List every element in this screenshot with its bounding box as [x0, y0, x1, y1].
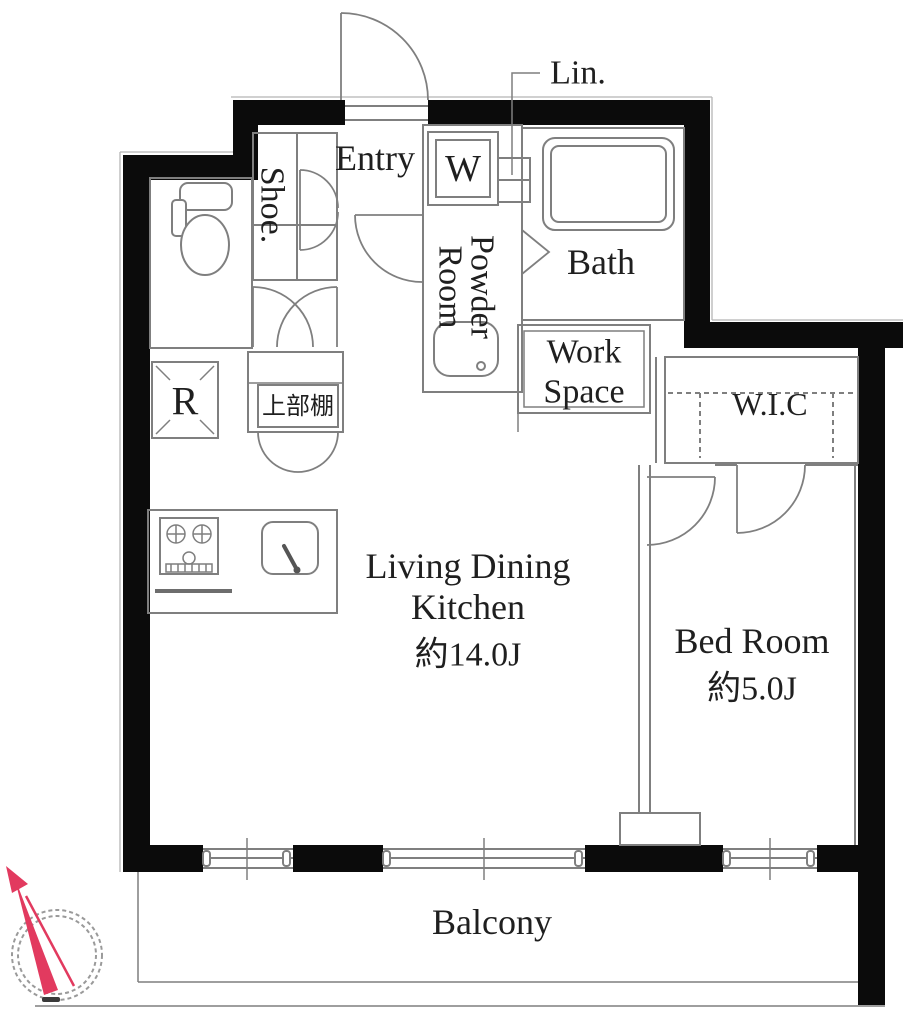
wic-door [737, 465, 805, 533]
bath-room: Bath [522, 128, 684, 320]
washer-label: W [445, 148, 481, 190]
ldk-label-2: Kitchen [411, 587, 525, 627]
washer-pan: W [428, 132, 498, 205]
window-ldk-left [203, 838, 293, 880]
linen-label: Lin. [550, 55, 606, 92]
bedroom-size: 約5.0J [707, 670, 797, 708]
work-space: Work Space [518, 325, 650, 432]
sink [262, 522, 318, 574]
balcony: Balcony [35, 872, 885, 1006]
powder-room-label-2: Room [432, 245, 469, 328]
floor-plan: Shoe. W Lin. Powder Room [0, 0, 903, 1024]
work-space-label-1: Work [547, 334, 622, 371]
window-bedroom [723, 838, 817, 880]
compass-needle [14, 876, 58, 995]
bath-label: Bath [567, 242, 635, 282]
bath-door [522, 230, 549, 274]
toilet-fixture [172, 183, 232, 275]
refrigerator-space: R [152, 362, 218, 438]
work-space-label-2: Space [543, 374, 624, 411]
upper-shelf-label: 上部棚 [262, 393, 334, 420]
ldk-size: 約14.0J [415, 636, 522, 674]
refrigerator-label: R [172, 379, 199, 424]
wic: W.I.C [656, 357, 858, 533]
bedroom-label: Bed Room [674, 621, 829, 661]
floor-plan-canvas: Shoe. W Lin. Powder Room [0, 0, 903, 1024]
wic-label: W.I.C [732, 386, 807, 422]
shoe-closet-doors [300, 170, 338, 250]
ldk-label-1: Living Dining [366, 546, 571, 586]
pantry-doors [258, 432, 338, 472]
shoe-closet: Shoe. [253, 133, 338, 280]
ldk: Living Dining Kitchen 約14.0J [366, 546, 571, 674]
entry-door [341, 13, 428, 120]
bathtub [543, 138, 674, 230]
balcony-label: Balcony [432, 902, 552, 942]
stove [160, 518, 218, 574]
shoe-label: Shoe. [254, 167, 291, 244]
kitchen-counter [148, 510, 337, 613]
bedroom-door [647, 477, 715, 545]
compass [6, 866, 102, 1002]
outer-contour [120, 97, 903, 872]
bedroom: Bed Room 約5.0J [620, 465, 858, 845]
upper-shelf: 上部棚 [248, 352, 343, 472]
window-ldk-center [383, 838, 585, 880]
entry-label: Entry [335, 138, 415, 178]
